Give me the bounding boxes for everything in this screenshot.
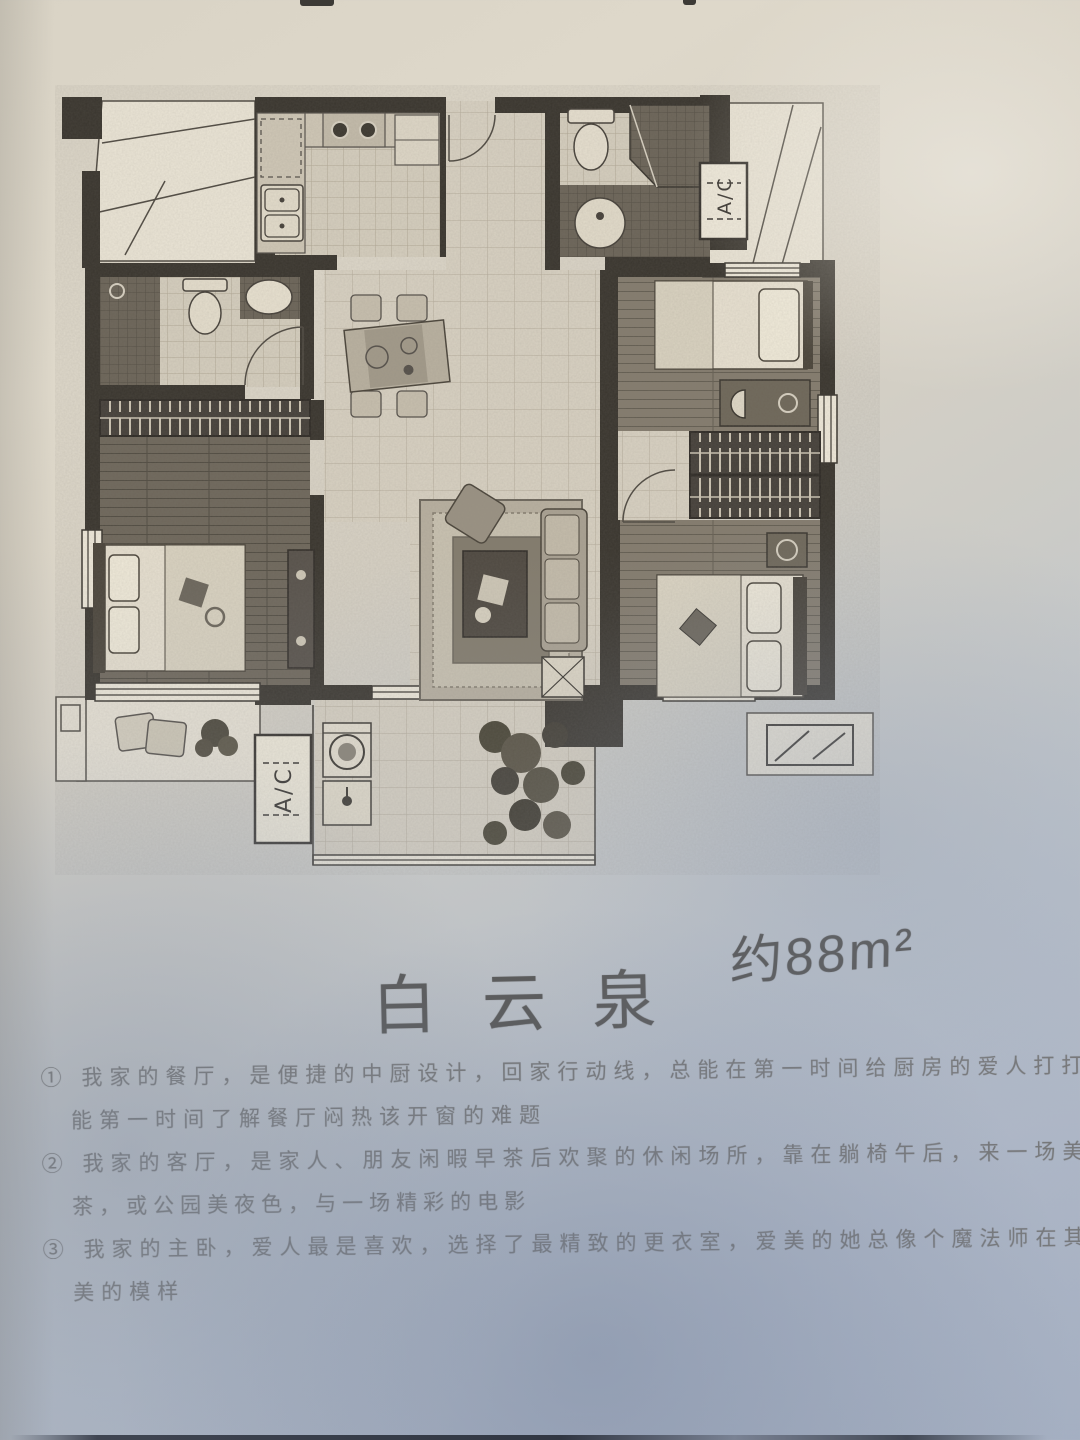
- note-line: 美的模样: [43, 1271, 1048, 1304]
- note-line: ① 我家的餐厅，是便捷的中厨设计，回家行动线，总能在第一时间给厨房的爱人打打下手…: [40, 1056, 1045, 1089]
- note-line: 能第一时间了解餐厅闷热该开窗的难题: [41, 1099, 1046, 1132]
- note-line: ③ 我家的主卧，爱人最是喜欢，选择了最精致的更衣室，爱美的她总像个魔法师在其中变…: [43, 1228, 1048, 1261]
- floor-plan-drawing: A/C: [55, 85, 880, 875]
- plan-title: 白云泉: [371, 949, 703, 1048]
- handwritten-notes: ① 我家的餐厅，是便捷的中厨设计，回家行动线，总能在第一时间给厨房的爱人打打下手…: [40, 1056, 1048, 1326]
- photo-of-floorplan-page: { "document": { "title": "白云泉", "area_la…: [0, 0, 1080, 1440]
- photo-bottom-edge: [0, 1435, 1080, 1440]
- note-line: 茶，或公园美夜色，与一场精彩的电影: [42, 1185, 1047, 1218]
- note-line: ② 我家的客厅，是家人、朋友闲暇早茶后欢聚的休闲场所，靠在躺椅午后，来一场美好的…: [42, 1142, 1047, 1175]
- print-grain-overlay: [55, 85, 880, 875]
- photo-edge-artifact: [300, 0, 334, 6]
- floor-plan: A/C: [55, 85, 880, 875]
- photo-edge-artifact: [683, 0, 696, 5]
- plan-area-label: 约88m²: [730, 904, 916, 996]
